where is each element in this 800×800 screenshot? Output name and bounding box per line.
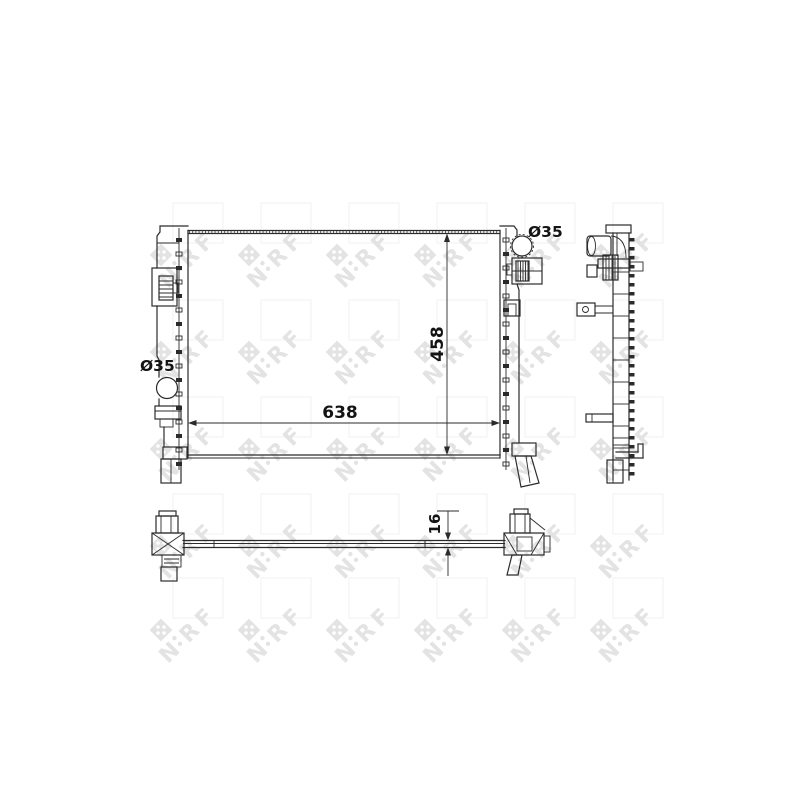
side-pipe-diameter-label: Ø35 xyxy=(140,357,175,375)
technical-drawing: N R F N R F xyxy=(0,0,800,800)
nrf-watermark-tile: N R F xyxy=(502,578,575,669)
nrf-watermark-tile: N R F xyxy=(590,397,663,488)
nrf-watermark-tile: N R F xyxy=(326,494,399,585)
nrf-watermark-tile: N R F xyxy=(502,397,575,488)
side-top-cap xyxy=(606,225,631,233)
side-lower-bracket xyxy=(586,414,613,422)
nrf-watermark-tile: N R F xyxy=(238,397,311,488)
watermark-layer: N R F N R F xyxy=(150,203,663,669)
width-dimension: 638 xyxy=(188,403,500,426)
nrf-watermark-tile: N R F xyxy=(150,300,223,391)
nrf-watermark-tile: N R F xyxy=(590,203,663,294)
nrf-watermark-tile: N R F xyxy=(238,494,311,585)
dim-height-label: 458 xyxy=(428,326,448,362)
dim-width-label: 638 xyxy=(322,403,358,423)
nrf-watermark-tile: N R F xyxy=(414,300,487,391)
side-pipe-opening xyxy=(157,378,178,399)
nrf-watermark-tile: N R F xyxy=(238,578,311,669)
nrf-watermark-tile: N R F xyxy=(590,300,663,391)
radiator-drawing-page: N R F N R F xyxy=(0,0,800,800)
nrf-watermark-tile: N R F xyxy=(414,397,487,488)
nrf-watermark-tile: N R F xyxy=(150,203,223,294)
nrf-watermark-tile: N R F xyxy=(238,300,311,391)
nrf-watermark-tile: N R F xyxy=(414,203,487,294)
side-mid-bracket xyxy=(577,303,613,316)
nrf-watermark-tile: N R F xyxy=(502,494,575,585)
dim-thickness-label: 16 xyxy=(426,514,444,535)
nrf-watermark-tile: N R F xyxy=(238,203,311,294)
nrf-watermark-tile: N R F xyxy=(414,494,487,585)
nrf-watermark-tile: N R F xyxy=(326,203,399,294)
nrf-watermark-tile: N R F xyxy=(590,578,663,669)
nrf-watermark-tile: N R F xyxy=(326,300,399,391)
top-pipe-diameter-label: Ø35 xyxy=(528,223,563,241)
nrf-watermark-tile: N R F xyxy=(414,578,487,669)
nrf-watermark-tile: N R F xyxy=(590,494,663,585)
nrf-watermark-tile: N R F xyxy=(150,578,223,669)
nrf-watermark-tile: N R F xyxy=(502,300,575,391)
nrf-watermark-tile: N R F xyxy=(326,578,399,669)
